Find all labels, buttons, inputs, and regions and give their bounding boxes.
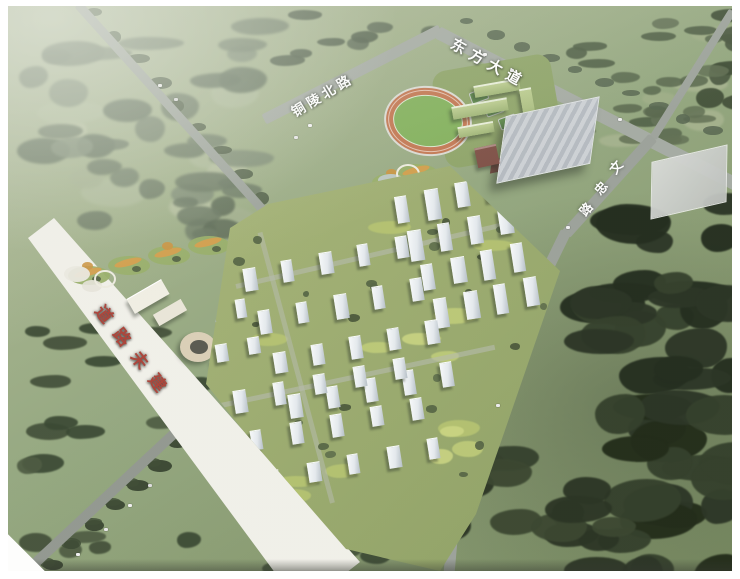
vehicle — [566, 226, 570, 229]
vehicle — [510, 69, 514, 72]
tree — [429, 242, 440, 251]
dense-forest — [602, 436, 669, 462]
tree-cluster — [231, 18, 289, 35]
dense-forest — [691, 457, 732, 500]
tree-cluster — [611, 72, 640, 83]
tree-cluster — [613, 104, 642, 113]
tree-cluster — [43, 336, 87, 350]
tree-cluster — [351, 31, 378, 43]
terrain-blob — [568, 66, 582, 73]
tree-cluster — [696, 88, 724, 108]
tree — [475, 441, 484, 450]
tree — [253, 236, 261, 244]
tree — [426, 405, 438, 413]
tree — [540, 303, 547, 310]
tree-cluster — [139, 179, 165, 199]
vehicle — [294, 136, 298, 139]
park-path-ring — [94, 270, 116, 288]
tree-cluster — [118, 37, 184, 50]
vehicle — [582, 209, 586, 212]
tree-cluster — [30, 375, 71, 388]
tree — [540, 374, 552, 380]
dense-forest — [701, 224, 732, 252]
apartment-building — [497, 208, 514, 235]
apartment-building — [247, 336, 261, 355]
tree-cluster — [641, 32, 676, 41]
dense-forest — [564, 329, 633, 354]
vehicle — [148, 484, 152, 487]
tree — [233, 257, 245, 266]
terrain-blob — [622, 90, 640, 96]
tree-cluster — [177, 532, 201, 548]
vehicle — [496, 404, 500, 407]
tree-cluster — [652, 18, 678, 29]
tree — [510, 343, 520, 350]
vehicle — [483, 53, 487, 56]
terrain-blob — [460, 18, 473, 24]
tree-cluster — [77, 211, 112, 230]
tree-cluster — [218, 38, 267, 52]
terrain-blob — [595, 78, 614, 87]
round-building-courtyard — [190, 340, 208, 354]
terrain-blob — [676, 114, 690, 124]
tree-cluster — [100, 139, 129, 150]
tree-cluster — [25, 326, 49, 337]
bottom-edge-shadow — [8, 559, 732, 571]
aerial-masterplan-rendering: 铜陵北路 东方大道 文忠路 道路未建 — [8, 6, 732, 571]
running-track — [380, 81, 476, 161]
tree-cluster — [173, 197, 199, 208]
terrain-blob — [703, 126, 723, 135]
terrain-blob — [514, 42, 530, 52]
vehicle — [104, 528, 108, 531]
vehicle — [128, 504, 132, 507]
park-plaza — [64, 266, 90, 282]
tree — [252, 322, 259, 328]
terrain-blob — [487, 30, 505, 40]
vehicle — [158, 84, 162, 87]
tree-cluster — [578, 59, 615, 68]
vehicle — [76, 553, 80, 556]
vehicle — [308, 124, 312, 127]
tree-cluster — [19, 66, 48, 88]
tree-cluster — [290, 49, 312, 57]
vehicle — [618, 118, 622, 121]
tree-cluster — [317, 38, 345, 46]
tree-cluster — [656, 77, 683, 86]
tree-cluster — [49, 79, 88, 106]
apartment-building — [203, 305, 216, 324]
tree — [433, 374, 441, 381]
commercial-building — [153, 299, 187, 326]
tree — [533, 426, 540, 434]
autumn-tree — [162, 242, 173, 250]
terrain-blob — [132, 266, 141, 272]
road-label-northwest: 铜陵北路 — [287, 67, 357, 120]
vehicle — [174, 98, 178, 101]
tree-cluster — [573, 42, 607, 50]
tree-cluster — [288, 10, 322, 19]
dense-forest — [654, 356, 703, 382]
terrain-blob — [212, 246, 221, 252]
tree — [542, 393, 551, 399]
image-frame: 铜陵北路 东方大道 文忠路 道路未建 — [0, 0, 740, 579]
tree-cluster — [89, 541, 111, 553]
terrain-blob — [172, 256, 181, 262]
